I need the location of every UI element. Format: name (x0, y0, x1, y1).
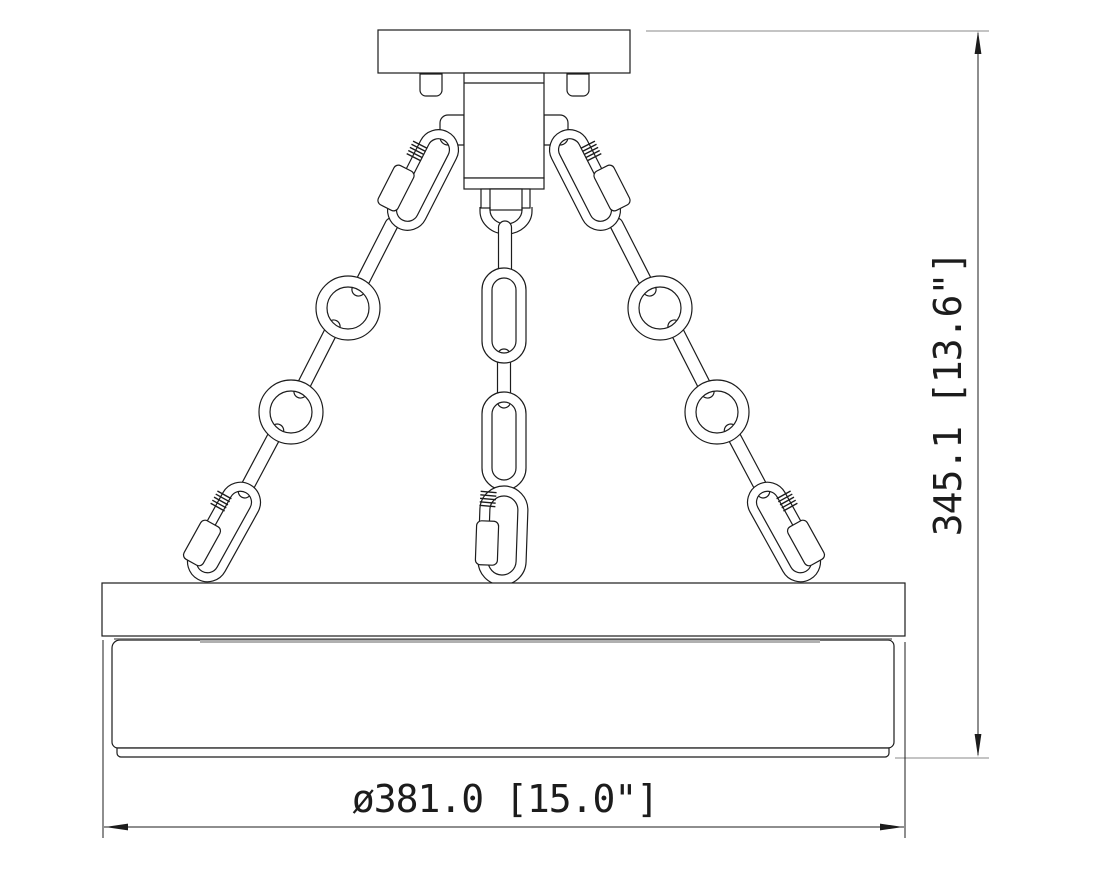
quick-link-bottom-right (740, 475, 827, 589)
height-dimension-label: 345.1 [13.6"] (926, 252, 970, 536)
drum-bottom-lip (117, 748, 889, 757)
dimension-arrow-up (975, 31, 982, 54)
chain-ring (628, 276, 692, 340)
left-chain (180, 123, 465, 589)
drum-top-band (102, 583, 905, 636)
right-chain (543, 123, 828, 589)
quick-link-sleeve (592, 163, 632, 212)
quick-link-sleeve (182, 518, 223, 567)
quick-link-bottom-left (180, 475, 267, 589)
chain-ring (259, 380, 323, 444)
drum-diffuser-band (112, 640, 894, 748)
chain-ring (685, 380, 749, 444)
dimension-arrow-left (105, 824, 128, 831)
center-chain (475, 189, 532, 586)
ceiling-canopy (378, 30, 630, 73)
quick-link-sleeve (786, 518, 827, 567)
stem-body (464, 73, 544, 178)
technical-drawing-page: 345.1 [13.6"] ø381.0 [15.0"] (0, 0, 1096, 877)
dimension-arrow-down (975, 734, 982, 757)
mounting-tab-left (420, 74, 442, 96)
fixture-dimension-drawing: 345.1 [13.6"] ø381.0 [15.0"] (0, 0, 1096, 877)
quick-link-sleeve-center (475, 521, 499, 566)
stem-bottom-band (464, 178, 544, 189)
chain-ring (316, 276, 380, 340)
chain-collar-inner (490, 189, 522, 210)
diameter-dimension-label: ø381.0 [15.0"] (352, 777, 658, 821)
quick-link-sleeve (376, 163, 416, 212)
drum-shade (102, 583, 905, 757)
dimension-arrow-right (880, 824, 903, 831)
mounting-tab-right (567, 74, 589, 96)
